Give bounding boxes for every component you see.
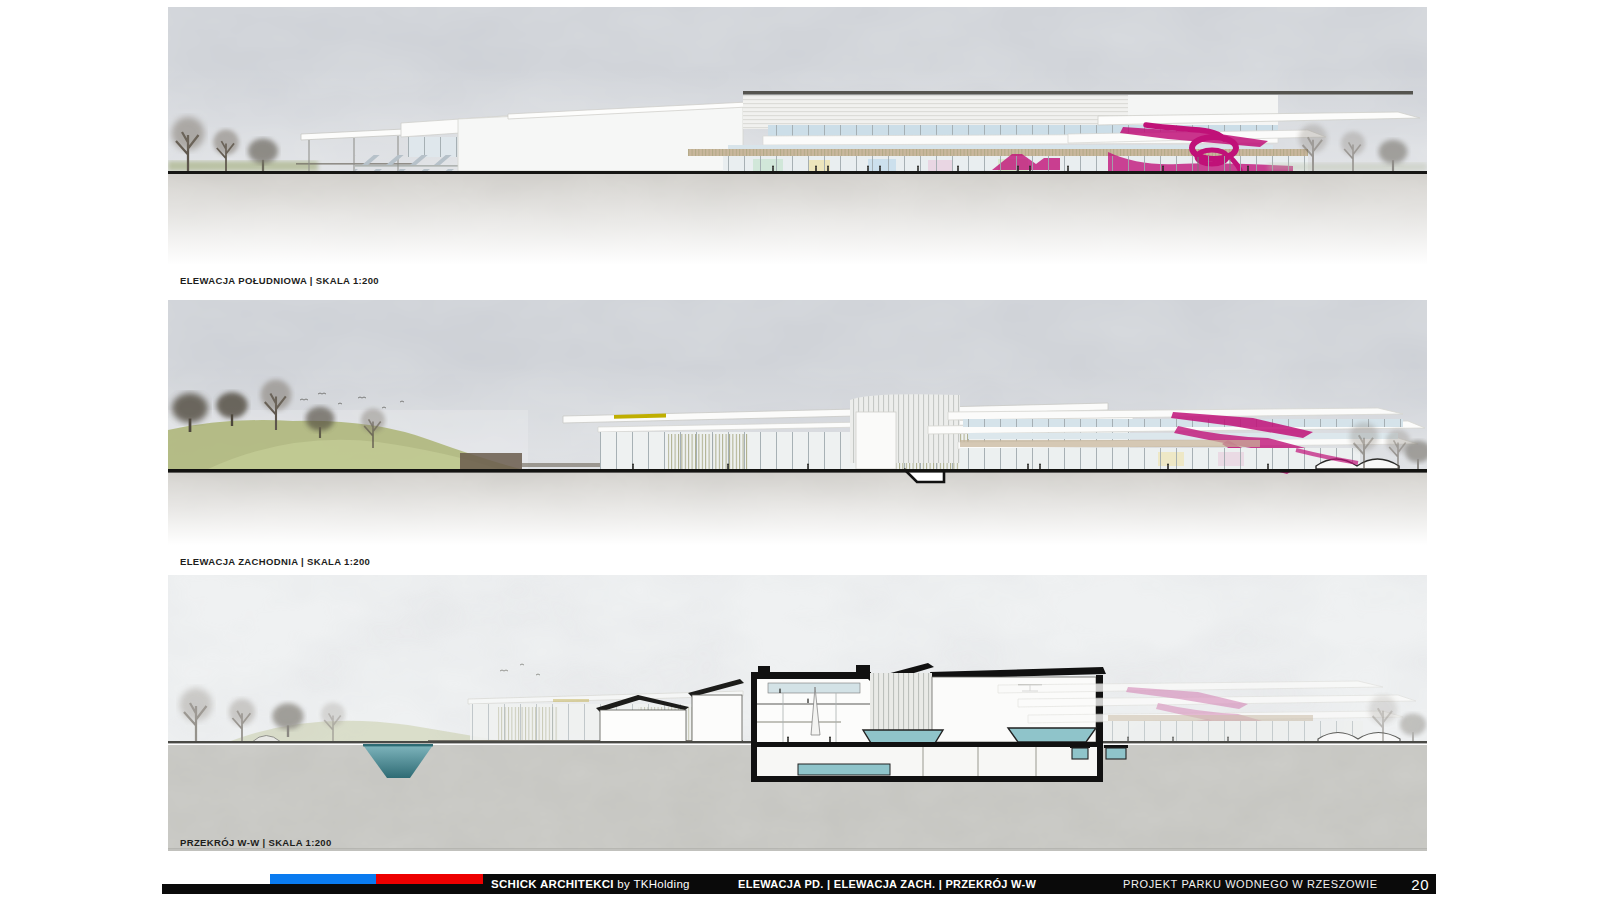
section-basement [751,742,1103,782]
section-ww-label: PRZEKRÓJ W-W | SKALA 1:200 [180,838,332,848]
sheet-title: ELEWACJA PD. | ELEWACJA ZACH. | PRZEKRÓJ… [738,878,1036,890]
studio-name-suffix: by TKHolding [614,878,690,890]
section-ww-panel [168,575,1427,852]
earth-wash [168,174,1427,265]
section-cut-main-hall [751,665,871,745]
blue-color-block [270,874,376,884]
ground-line [168,469,1427,473]
south-elevation-panel [168,7,1427,265]
red-color-block [376,874,483,884]
west-elevation-label: ELEWACJA ZACHODNIA | SKALA 1:200 [180,557,370,567]
title-bar: SCHICK ARCHITEKCI by TKHolding ELEWACJA … [162,874,1436,894]
glass-mullions [723,156,1308,171]
south-elevation-label: ELEWACJA POŁUDNIOWA | SKALA 1:200 [180,276,379,286]
page-number: 20 [1411,876,1429,893]
presentation-sheet: ELEWACJA POŁUDNIOWA | SKALA 1:200 ELEWAC… [0,0,1597,897]
earth-wash [168,472,1427,545]
ground-line [168,171,1427,174]
studio-name: SCHICK ARCHITEKCI by TKHolding [491,878,690,890]
south-elevation-drawing [168,7,1427,265]
studio-name-bold: SCHICK ARCHITEKCI [491,878,614,890]
project-title: PROJEKT PARKU WODNEGO W RZESZOWIE [1123,878,1378,890]
west-elevation-panel [168,300,1427,545]
west-elevation-drawing [168,300,1427,545]
title-bar-text-area: SCHICK ARCHITEKCI by TKHolding ELEWACJA … [483,874,1436,894]
section-ww-drawing [168,575,1427,852]
